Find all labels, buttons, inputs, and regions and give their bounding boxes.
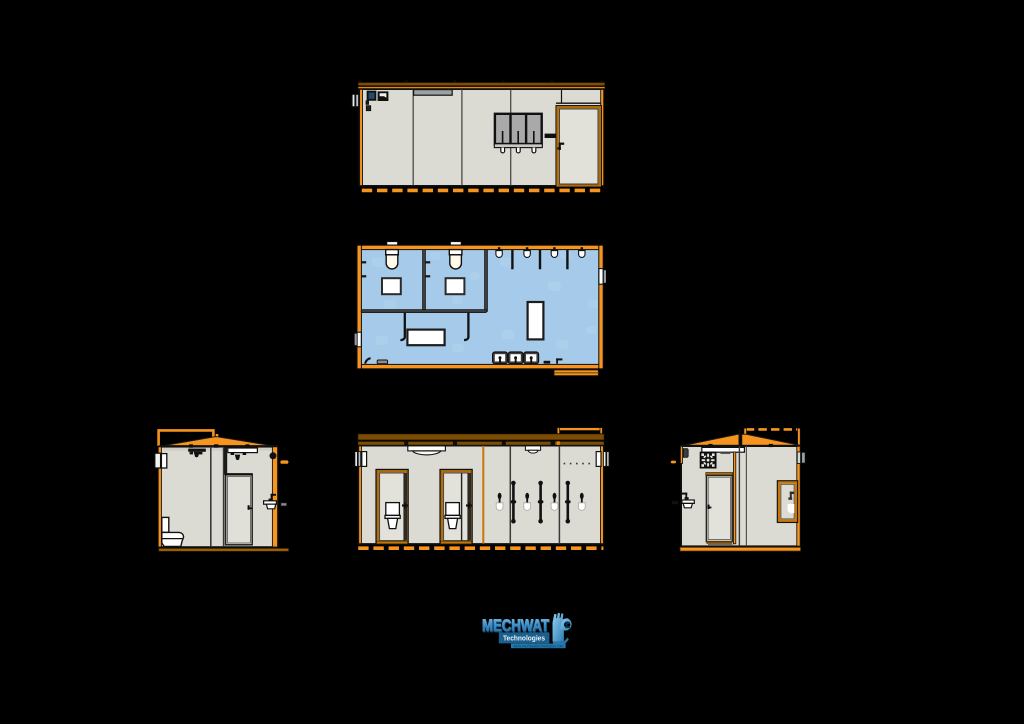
svg-text:www.mechwattechnologies.com: www.mechwattechnologies.com <box>514 644 564 649</box>
svg-text:MECHWAT: MECHWAT <box>482 616 550 635</box>
svg-text:Technologies: Technologies <box>503 633 545 642</box>
